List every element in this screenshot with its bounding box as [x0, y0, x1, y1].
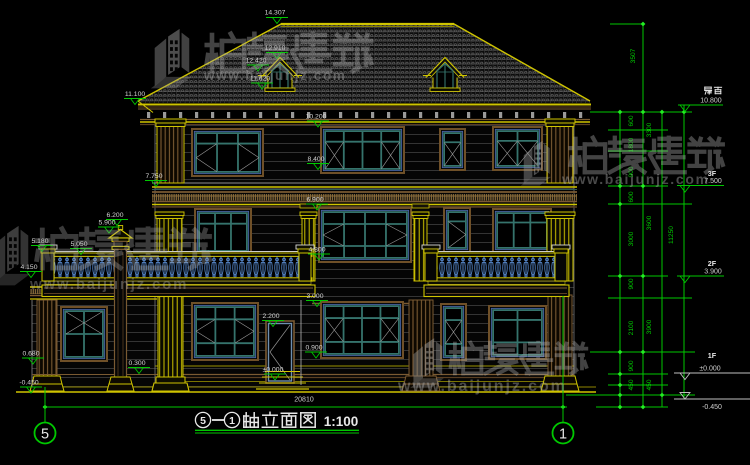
svg-text:2F: 2F: [708, 259, 717, 268]
svg-text:3507: 3507: [630, 48, 637, 63]
svg-text:3900: 3900: [646, 319, 653, 334]
svg-text:3.000: 3.000: [306, 293, 323, 300]
svg-text:2100: 2100: [628, 320, 635, 335]
svg-text:11.100: 11.100: [125, 91, 146, 98]
svg-text:±0.000: ±0.000: [263, 367, 284, 374]
svg-text:www.baijunjz.com: www.baijunjz.com: [397, 378, 567, 395]
svg-text:www.baijunjz.com: www.baijunjz.com: [203, 68, 346, 83]
svg-text:5: 5: [200, 415, 206, 427]
svg-text:±0.000: ±0.000: [699, 366, 720, 373]
svg-text:450: 450: [628, 379, 635, 390]
svg-text:3300: 3300: [646, 122, 653, 137]
svg-text:600: 600: [628, 115, 635, 126]
svg-text:1:100: 1:100: [324, 414, 359, 429]
svg-text:11250: 11250: [668, 226, 675, 244]
svg-text:0.680: 0.680: [22, 351, 39, 358]
svg-text:0.300: 0.300: [128, 360, 145, 367]
svg-text:450: 450: [646, 379, 653, 390]
svg-text:5: 5: [41, 427, 49, 443]
svg-text:3.900: 3.900: [704, 269, 722, 276]
svg-text:www.baijunjz.com: www.baijunjz.com: [561, 171, 710, 187]
svg-text:6.200: 6.200: [106, 212, 123, 219]
svg-text:3600: 3600: [646, 215, 653, 230]
svg-text:900: 900: [628, 360, 635, 371]
svg-text:10.200: 10.200: [306, 114, 327, 121]
svg-text:1: 1: [229, 415, 235, 427]
svg-text:0.900: 0.900: [305, 345, 322, 352]
svg-text:5.900: 5.900: [98, 220, 115, 227]
svg-text:-0.450: -0.450: [702, 404, 722, 411]
svg-text:600: 600: [628, 191, 635, 202]
svg-text:900: 900: [628, 278, 635, 289]
svg-text:4.800: 4.800: [308, 247, 325, 254]
svg-text:3000: 3000: [628, 231, 635, 246]
svg-text:7.750: 7.750: [145, 173, 162, 180]
svg-text:6.900: 6.900: [306, 197, 323, 204]
svg-text:1: 1: [559, 427, 567, 443]
svg-text:-0.450: -0.450: [19, 380, 38, 387]
svg-text:20810: 20810: [294, 397, 314, 404]
svg-text:10.800: 10.800: [700, 98, 722, 105]
svg-text:2.200: 2.200: [262, 313, 279, 320]
svg-text:1F: 1F: [708, 351, 717, 360]
svg-text:14.307: 14.307: [265, 10, 286, 17]
svg-text:www.baijunjz.com: www.baijunjz.com: [29, 276, 188, 293]
svg-text:8.400: 8.400: [307, 156, 324, 163]
